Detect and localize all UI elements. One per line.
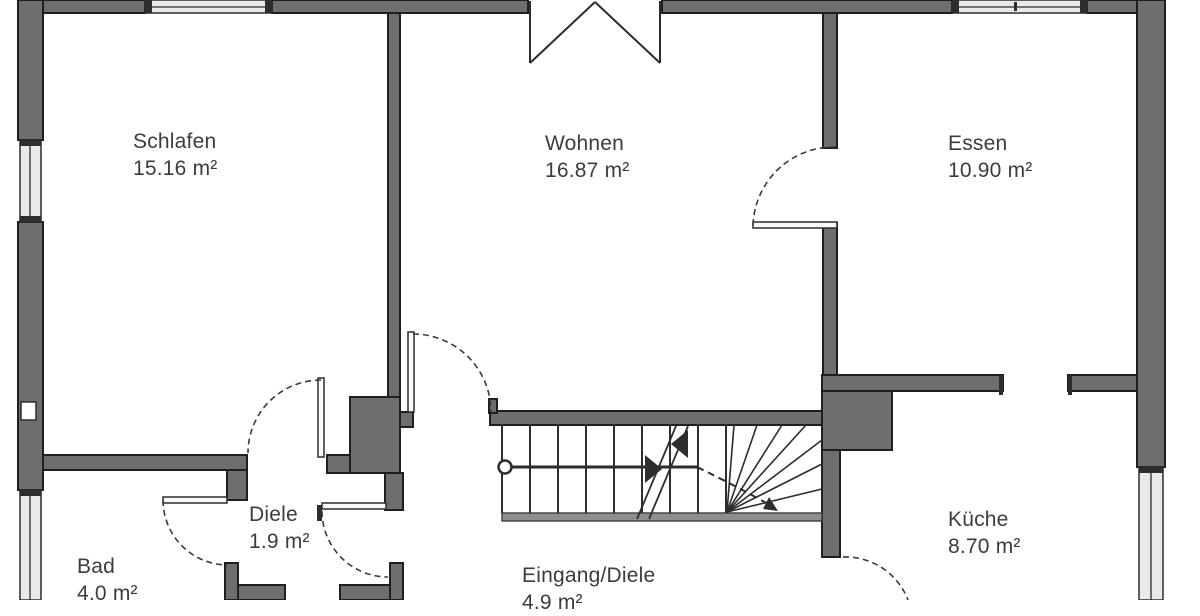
stair-winders [727, 425, 822, 512]
window-bad [20, 490, 41, 600]
stair-walkline-start [499, 461, 512, 474]
room-name: Essen [948, 130, 1032, 157]
room-area: 15.16 m² [133, 155, 217, 182]
wall-schlafen-wohnen [388, 13, 400, 413]
window-schlafen [145, 0, 272, 13]
room-area: 4.0 m² [77, 580, 138, 607]
window-left-upper [20, 140, 41, 222]
room-name: Bad [77, 553, 138, 580]
door-schlafen [248, 378, 324, 457]
door-diele [317, 503, 388, 577]
room-area: 16.87 m² [545, 157, 629, 184]
wall-wohnen-essen-lower [823, 223, 837, 377]
wall-bad-diele-bottom [225, 563, 238, 600]
door-bad [163, 497, 227, 565]
door-kueche [843, 557, 908, 600]
staircase [499, 424, 823, 521]
wall-junction-block [822, 391, 892, 450]
label-wohnen: Wohnen 16.87 m² [545, 130, 629, 184]
wall-stair-right [822, 450, 840, 557]
room-name: Diele [249, 501, 310, 528]
stair-walkline-arrow [763, 497, 778, 511]
wall-essen-bottom-left [822, 375, 1003, 391]
chimney-foot [327, 455, 350, 473]
room-area: 1.9 m² [249, 528, 310, 555]
room-name: Schlafen [133, 128, 217, 155]
wall-stub-bottom-mid-v [390, 563, 403, 600]
wall-top-3 [662, 0, 952, 13]
room-name: Wohnen [545, 130, 629, 157]
wall-essen-bottom-right [1068, 375, 1137, 391]
wall-left-2 [18, 222, 43, 490]
balcony-double-door [530, 1, 660, 63]
wall-top-2 [272, 0, 528, 13]
label-essen: Essen 10.90 m² [948, 130, 1032, 184]
room-name: Eingang/Diele [522, 562, 655, 589]
passage-jambs [999, 375, 1072, 395]
wall-stair-top [490, 411, 837, 425]
door-wohnen [408, 332, 491, 412]
wall-niche [21, 402, 36, 420]
window-essen [952, 0, 1087, 13]
wall-left-1 [18, 0, 43, 140]
wall-bad-diele-top [227, 470, 247, 500]
label-bad: Bad 4.0 m² [77, 553, 138, 607]
door-essen [753, 147, 837, 228]
room-area: 10.90 m² [948, 157, 1032, 184]
room-area: 8.70 m² [948, 533, 1021, 560]
wall-schlafen-bottom [43, 455, 247, 470]
wall-stub-bottom-left [238, 585, 285, 600]
label-eingang-diele: Eingang/Diele 4.9 m² [522, 562, 655, 616]
label-kueche: Küche 8.70 m² [948, 506, 1021, 560]
room-area: 4.9 m² [522, 589, 655, 616]
window-kueche [1139, 467, 1163, 600]
chimney-main [350, 397, 400, 473]
wall-right-1 [1137, 0, 1165, 467]
stair-bottom-edge [502, 513, 822, 521]
stair-break-symbol [637, 426, 688, 519]
label-schlafen: Schlafen 15.16 m² [133, 128, 217, 182]
wall-wohnen-essen-upper [823, 13, 837, 148]
room-name: Küche [948, 506, 1021, 533]
chimney-leg [385, 473, 403, 510]
chimney-protrusion [400, 412, 413, 427]
label-diele: Diele 1.9 m² [249, 501, 310, 555]
